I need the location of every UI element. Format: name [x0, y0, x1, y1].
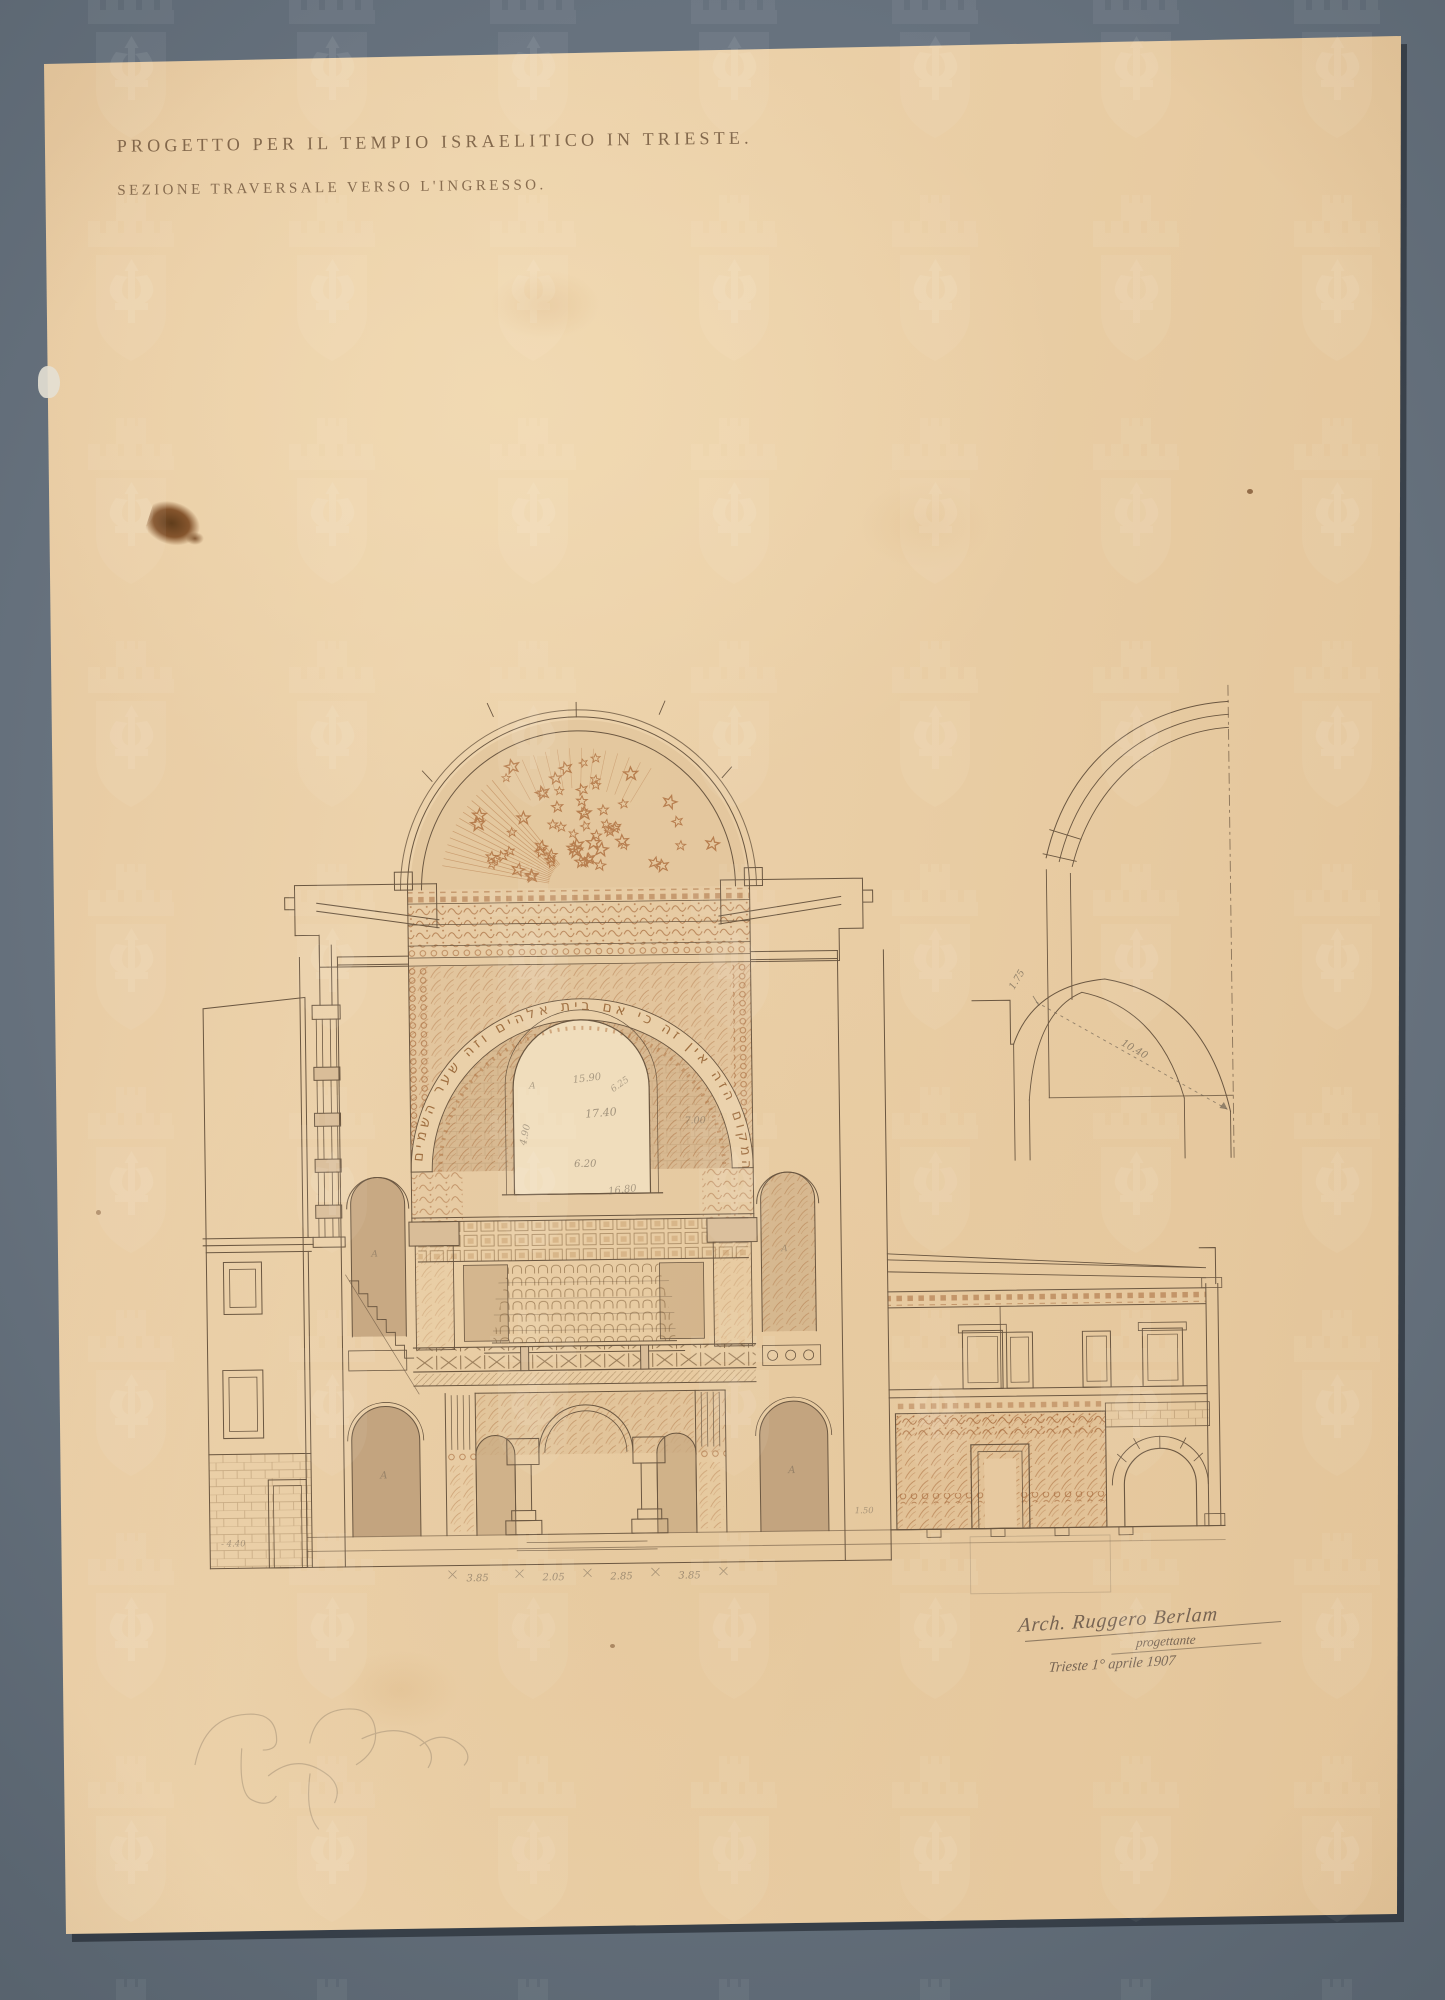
detail-radius-dim: 10.40 — [1119, 1038, 1150, 1062]
gallery-coffers — [418, 1218, 748, 1262]
speck — [610, 1644, 615, 1648]
arch-radius-detail — [968, 685, 1234, 1160]
svg-text:A: A — [780, 1244, 788, 1254]
speck — [1247, 489, 1253, 494]
svg-text:A: A — [379, 1470, 387, 1481]
floor-dim-3: 2.85 — [609, 1571, 632, 1582]
svg-text:A: A — [370, 1250, 378, 1260]
floor-dim-1: 3.85 — [466, 1573, 488, 1584]
paper-edge-tear — [38, 366, 60, 398]
window-dim-5: 7.00 — [685, 1115, 706, 1126]
dome-interior — [408, 718, 746, 890]
railing-left — [451, 1395, 470, 1449]
gallery-seating — [491, 1263, 676, 1343]
speck — [96, 1210, 101, 1215]
detail-rise-dim: 1.75 — [1007, 968, 1027, 992]
annex-level: 1.50 — [855, 1506, 875, 1516]
svg-text:A: A — [787, 1465, 795, 1476]
window-dim-2: 17.40 — [585, 1105, 617, 1121]
foundation-outline — [970, 1535, 1111, 1594]
pencil-sketch — [194, 1707, 469, 1831]
drawing-sheet: PROGETTO PER IL TEMPIO ISRAELITICO IN TR… — [0, 0, 1445, 2000]
floor-dim-4: 3.85 — [678, 1570, 700, 1581]
section-cut-mullions — [309, 945, 345, 1247]
sheet-content: PROGETTO PER IL TEMPIO ISRAELITICO IN TR… — [0, 0, 1445, 2000]
window-dim-3: 6.20 — [574, 1159, 597, 1170]
basement-level: - 4.40 — [221, 1539, 246, 1549]
detail-centerline — [1228, 685, 1234, 1157]
pencil-mark-a: A — [528, 1081, 536, 1091]
scanned-drawing-canvas: PROGETTO PER IL TEMPIO ISRAELITICO IN TR… — [0, 0, 1445, 2000]
floor-dim-2: 2.05 — [541, 1572, 564, 1583]
section-drawing: מה נורא המקום הזה אין זה כי אם בית אלהים… — [0, 0, 1445, 2000]
